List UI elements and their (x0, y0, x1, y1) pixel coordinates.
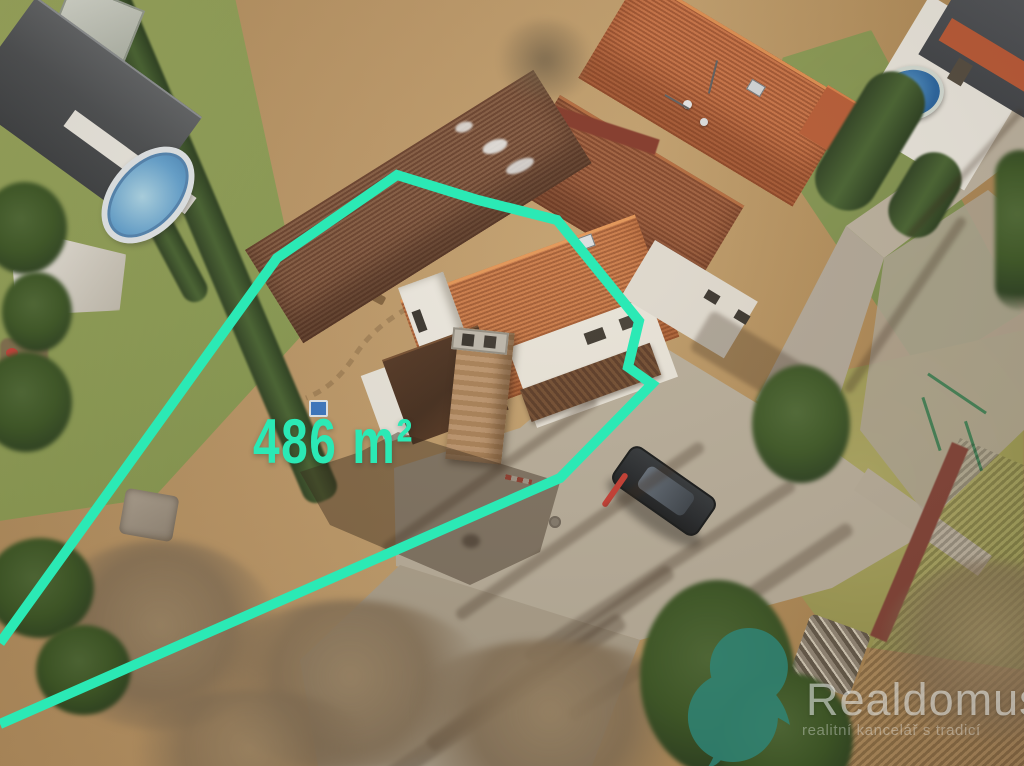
aerial-photo-scene: Realdomus realitní kancelář s tradicí 48… (0, 0, 1024, 766)
logo-mark-path (688, 628, 790, 766)
conifer-mid-right (752, 365, 850, 483)
conifer-bottomleft-2 (36, 625, 131, 715)
manhole-cover (549, 516, 561, 528)
chimney-flue-2 (483, 335, 496, 348)
brand-name: Realdomus (806, 674, 1024, 726)
satellite-dish-2 (700, 118, 708, 126)
brand-tagline: realitní kancelář s tradicí (802, 722, 981, 739)
area-label: 486 m² (253, 406, 414, 478)
conifer-right-edge (995, 150, 1024, 310)
bare-shrub-top (495, 20, 595, 100)
chimney-flue (461, 333, 474, 346)
watermark-logo-icon (686, 626, 816, 766)
conifer-left-2 (2, 272, 72, 352)
stone-ruin (118, 488, 179, 543)
